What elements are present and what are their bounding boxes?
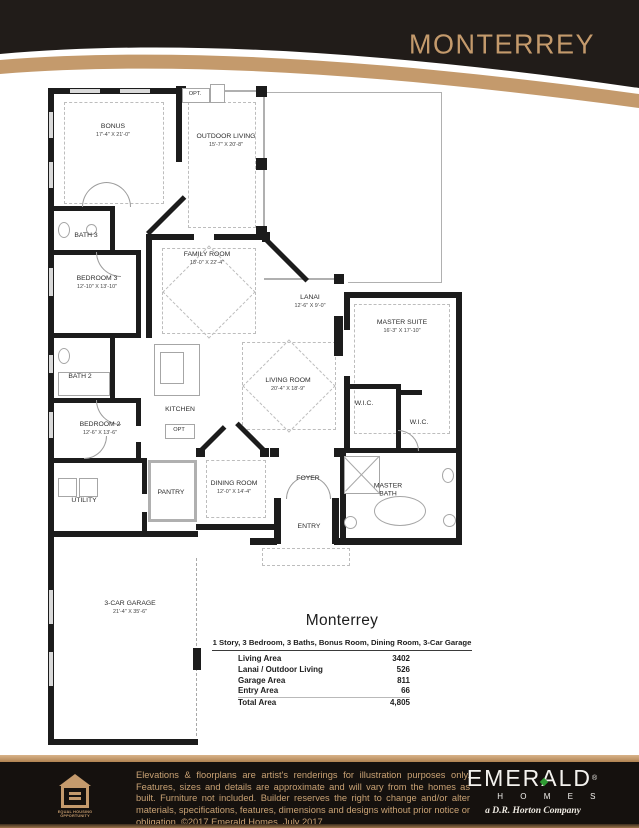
disclaimer-text: Elevations & floorplans are artist's ren… (136, 770, 470, 828)
room-label-opt-kitchen: OPT (173, 427, 185, 435)
registered-mark: ® (592, 775, 599, 782)
plan-graphic-segment (142, 458, 147, 494)
plan-graphic-segment (196, 425, 226, 455)
room-label-dining-room: DINING ROOM12'-0" X 14'-4" (211, 480, 258, 496)
room-label-master-suite: MASTER SUITE16'-3" X 17'-10" (377, 319, 427, 335)
room-label-bath-3: BATH 3 (74, 232, 97, 240)
plan-graphic-segment (256, 86, 267, 97)
plan-graphic-segment (148, 460, 151, 522)
plan-graphic-segment (48, 88, 182, 94)
room-label-entry: ENTRY (298, 523, 321, 531)
plan-graphic-segment (146, 234, 194, 240)
plan-graphic-segment (334, 316, 343, 356)
brand-name: EMERALD (467, 765, 592, 791)
room-label-lanai: LANAI12'-6" X 9'-0" (294, 294, 325, 310)
plan-graphic-segment (344, 384, 400, 389)
plan-graphic-segment (110, 206, 115, 255)
plan-graphic-segment (58, 348, 70, 364)
table-row: Garage Area811 (238, 676, 410, 687)
room-label-bedroom-2: BEDROOM 212'-6" X 13'-6" (80, 421, 121, 437)
plan-name: Monterrey (212, 612, 472, 630)
plan-graphic-segment (264, 278, 336, 280)
plan-graphic-segment (58, 222, 70, 238)
room-label-bedroom-3: BEDROOM 312'-10" X 13'-10" (77, 275, 118, 291)
room-label-master-bath: MASTER BATH (367, 482, 409, 497)
plan-graphic-segment (196, 524, 276, 530)
equal-housing-opportunity-icon: EQUAL HOUSING OPPORTUNITY (52, 774, 98, 819)
plan-graphic-segment (146, 234, 152, 338)
area-table: Living Area3402 Lanai / Outdoor Living52… (212, 654, 472, 709)
plan-graphic-segment (160, 352, 184, 384)
plan-graphic-segment (58, 478, 77, 497)
plan-graphic-segment (48, 537, 54, 745)
plan-graphic-segment (84, 436, 107, 459)
plan-graphic-segment (194, 460, 197, 522)
room-label-outdoor-living: OUTDOOR LIVING15'-7" X 20'-8" (197, 133, 256, 149)
plan-graphic-segment (151, 519, 195, 522)
plan-graphic-segment (49, 652, 53, 686)
plan-graphic-segment (136, 398, 141, 426)
footer: EQUAL HOUSING OPPORTUNITY Elevations & f… (0, 755, 639, 828)
brand-homes: H O M E S (453, 792, 613, 801)
plan-graphic-segment (456, 292, 462, 545)
plan-graphic-segment (443, 514, 456, 527)
room-label-living-room: LIVING ROOM20'-4" X 18'-9" (265, 377, 310, 393)
specs-panel: Monterrey 1 Story, 3 Bedroom, 3 Baths, B… (212, 612, 472, 709)
plan-graphic-segment (49, 590, 53, 624)
plan-graphic-segment (374, 496, 426, 526)
room-label-bath-2: BATH 2 (68, 373, 91, 381)
table-row-total: Total Area4,805 (238, 698, 410, 709)
room-label-garage: 3-CAR GARAGE21'-4" X 35'-6" (104, 600, 155, 616)
plan-graphic-segment (210, 84, 225, 103)
plan-graphic-segment (151, 460, 195, 463)
room-label-utility: UTILITY (71, 497, 96, 505)
plan-graphic-segment (49, 412, 53, 438)
emerald-homes-logo: EMERALD® H O M E S a D.R. Horton Company (453, 766, 613, 816)
plan-graphic-segment (348, 282, 442, 283)
plan-graphic-segment (110, 338, 115, 403)
plan-graphic-segment (340, 538, 462, 545)
room-label-wic-1: W.I.C. (355, 400, 374, 408)
plan-graphic-segment (441, 93, 442, 283)
plan-graphic-segment (70, 89, 100, 93)
room-label-pantry: PANTRY (158, 489, 185, 497)
plan-graphic-segment (48, 88, 54, 540)
plan-graphic-segment (256, 158, 267, 170)
plan-graphic-segment (48, 531, 198, 537)
room-label-bonus: BONUS17'-4" X 21'-0" (96, 123, 130, 139)
plan-graphic-segment (250, 538, 277, 545)
plan-graphic-segment (49, 355, 53, 373)
room-label-foyer: FOYER (296, 475, 319, 483)
plan-graphic-segment (442, 468, 454, 483)
plan-graphic-segment (270, 448, 279, 457)
plan-graphic-segment (196, 558, 197, 736)
plan-graphic-segment (48, 250, 141, 255)
plan-graphic-segment (79, 478, 98, 497)
room-label-family-room: FAMILY ROOM18'-0" X 22'-4" (184, 251, 231, 267)
plan-graphic-segment (48, 739, 198, 745)
plan-graphic-segment (264, 238, 309, 283)
plan-graphic-segment (344, 292, 462, 298)
plan-graphic-segment (96, 252, 121, 277)
plan-graphic-segment (262, 548, 350, 566)
table-row: Living Area3402 (238, 654, 410, 665)
plan-graphic-segment (193, 648, 201, 670)
plan-graphic-segment (396, 390, 422, 395)
equal-housing-label: EQUAL HOUSING OPPORTUNITY (52, 810, 98, 819)
plan-graphic-segment (49, 268, 53, 296)
footer-bottom-gold-bar (0, 824, 639, 828)
room-label-wic-2: W.I.C. (410, 419, 429, 427)
footer-top-gold-bar (0, 755, 639, 762)
table-row: Lanai / Outdoor Living526 (238, 665, 410, 676)
plan-graphic-segment (49, 112, 53, 138)
plan-graphic-segment (49, 162, 53, 188)
plan-graphic-segment (48, 333, 141, 338)
plan-graphic-segment (48, 458, 147, 463)
plan-graphic-segment (48, 398, 141, 403)
plan-graphic-segment (136, 250, 141, 338)
plan-graphic-segment (334, 274, 344, 284)
plan-graphic-segment (188, 102, 256, 228)
plan-graphic-segment (264, 92, 442, 93)
plan-graphic-segment (344, 516, 357, 529)
plan-graphic-segment (120, 89, 150, 93)
plan-graphic-segment (344, 292, 350, 330)
plan-summary: 1 Story, 3 Bedroom, 3 Baths, Bonus Room,… (212, 638, 472, 651)
brand-tagline: a D.R. Horton Company (453, 806, 613, 816)
table-row: Entry Area66 (238, 686, 410, 698)
room-label-kitchen: KITCHEN (165, 406, 195, 414)
floorplan-flyer: BONUS17'-4" X 21'-0" OUTDOOR LIVING15'-7… (0, 0, 639, 828)
room-label-opt-top: OPT. (189, 91, 201, 99)
